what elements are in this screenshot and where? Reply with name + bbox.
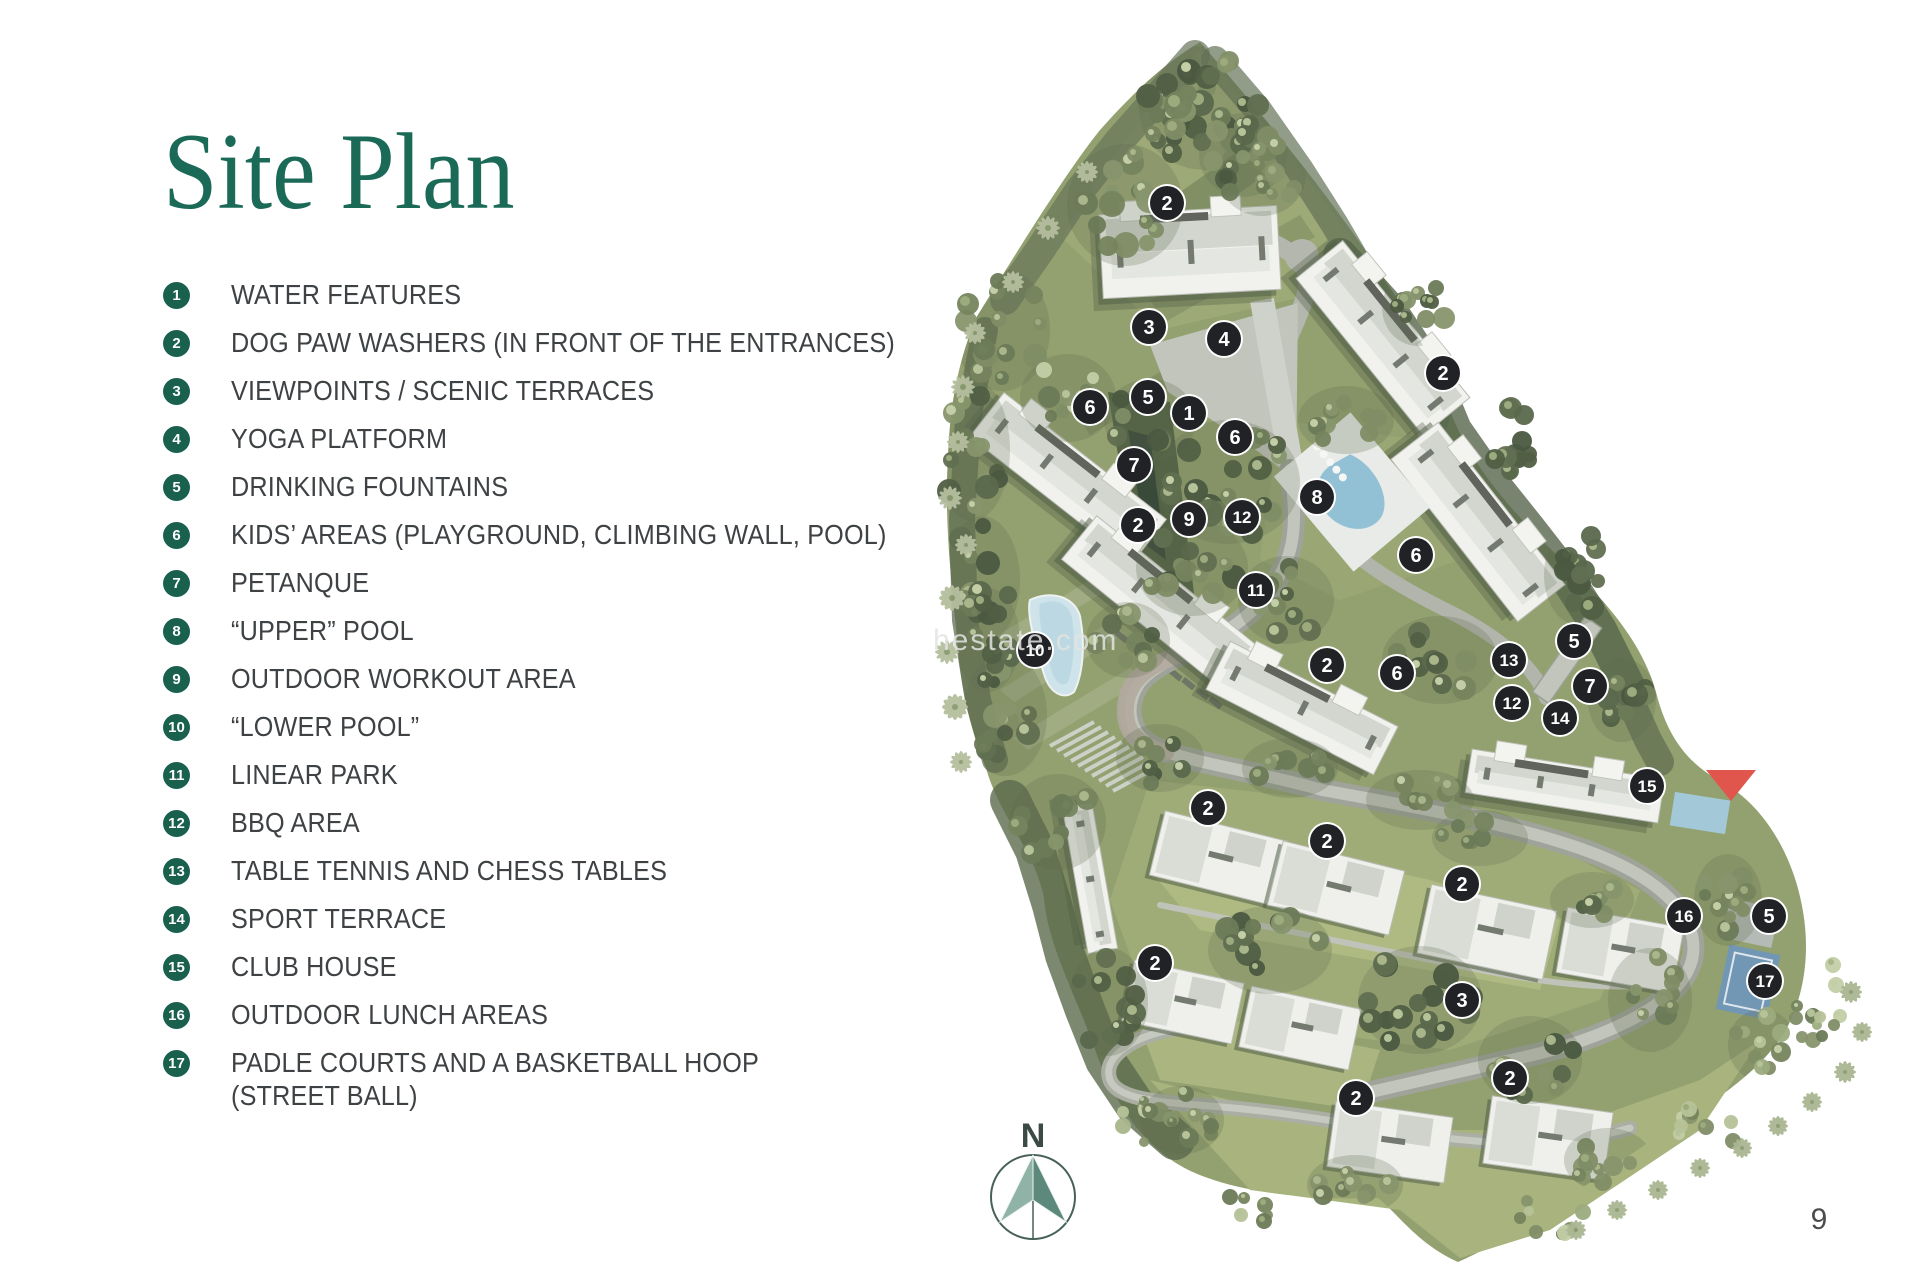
- svg-text:2: 2: [1350, 1088, 1361, 1110]
- svg-text:8: 8: [1311, 487, 1322, 509]
- svg-text:6: 6: [1410, 545, 1421, 567]
- svg-text:5: 5: [1142, 387, 1153, 409]
- svg-text:6: 6: [1229, 427, 1240, 449]
- svg-text:15: 15: [1638, 777, 1657, 796]
- svg-text:7: 7: [1128, 455, 1139, 477]
- svg-text:2: 2: [1321, 831, 1332, 853]
- svg-text:12: 12: [1233, 508, 1252, 527]
- svg-text:2: 2: [1132, 515, 1143, 537]
- svg-text:4: 4: [1218, 329, 1230, 351]
- svg-text:16: 16: [1675, 907, 1694, 926]
- svg-text:12: 12: [1503, 694, 1522, 713]
- svg-text:14: 14: [1551, 709, 1570, 728]
- svg-text:9: 9: [1811, 1203, 1828, 1236]
- svg-text:1: 1: [1183, 403, 1194, 425]
- svg-text:13: 13: [1500, 651, 1519, 670]
- svg-text:11: 11: [1247, 581, 1265, 600]
- svg-text:2: 2: [1202, 798, 1213, 820]
- svg-text:2: 2: [1504, 1068, 1515, 1090]
- svg-text:5: 5: [1568, 631, 1579, 653]
- svg-text:hestate.com: hestate.com: [933, 624, 1118, 657]
- svg-text:2: 2: [1456, 874, 1467, 896]
- svg-text:6: 6: [1391, 663, 1402, 685]
- svg-text:2: 2: [1321, 655, 1332, 677]
- svg-text:N: N: [1021, 1117, 1046, 1155]
- svg-text:7: 7: [1584, 676, 1595, 698]
- svg-text:5: 5: [1763, 906, 1774, 928]
- svg-text:2: 2: [1161, 193, 1172, 215]
- svg-text:3: 3: [1143, 317, 1154, 339]
- svg-text:9: 9: [1183, 509, 1194, 531]
- svg-text:3: 3: [1456, 990, 1467, 1012]
- svg-text:17: 17: [1756, 972, 1775, 991]
- svg-text:2: 2: [1437, 363, 1448, 385]
- svg-text:6: 6: [1084, 397, 1095, 419]
- svg-text:2: 2: [1149, 953, 1160, 975]
